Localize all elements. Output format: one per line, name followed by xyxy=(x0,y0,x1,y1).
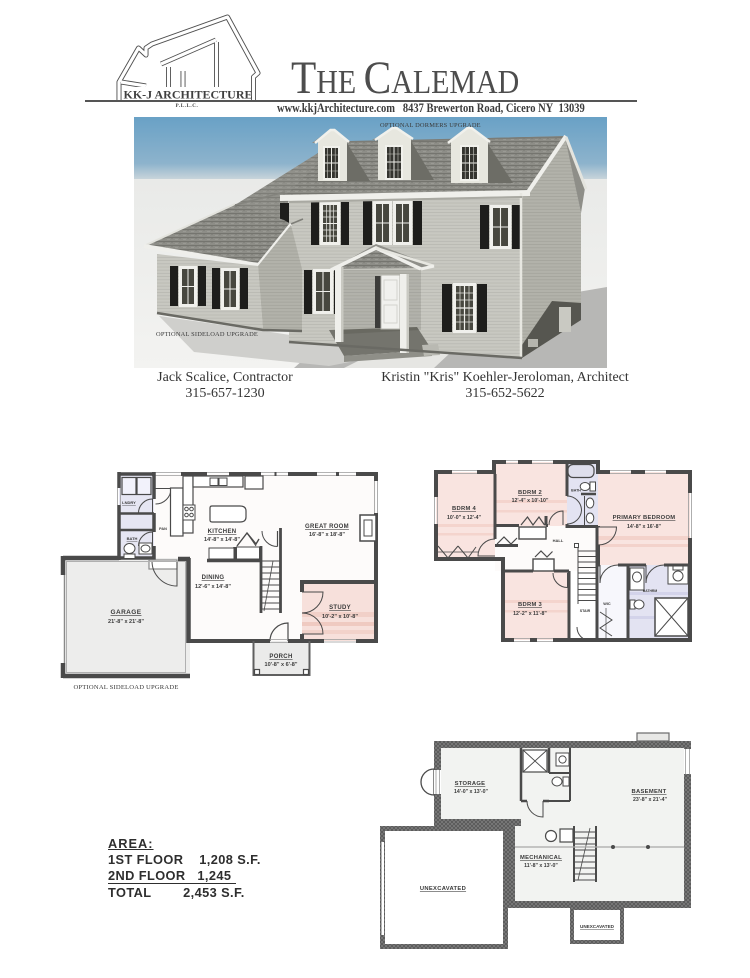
svg-text:PAN: PAN xyxy=(159,527,167,531)
svg-text:WIC: WIC xyxy=(603,602,611,606)
svg-text:KITCHEN: KITCHEN xyxy=(208,529,237,535)
svg-text:21'-8" x 21'-8": 21'-8" x 21'-8" xyxy=(108,619,144,625)
svg-text:16'-8" x 18'-8": 16'-8" x 18'-8" xyxy=(309,532,345,538)
svg-text:BATHRM: BATHRM xyxy=(643,589,658,593)
svg-text:OPTIONAL DORMERS UPGRADE: OPTIONAL DORMERS UPGRADE xyxy=(380,122,481,129)
svg-text:14'-8" x 16'-8": 14'-8" x 16'-8" xyxy=(627,524,661,530)
svg-text:DINING: DINING xyxy=(202,575,225,581)
svg-text:12'-2" x 11'-8": 12'-2" x 11'-8" xyxy=(513,611,547,617)
svg-text:HALL: HALL xyxy=(553,538,564,543)
svg-text:STORAGE: STORAGE xyxy=(455,781,486,787)
svg-text:11'-8" x 13'-0": 11'-8" x 13'-0" xyxy=(524,863,558,869)
svg-text:14'-8" x 14'-8": 14'-8" x 14'-8" xyxy=(204,537,240,543)
svg-text:OPTIONAL SIDELOAD UPGRADE: OPTIONAL SIDELOAD UPGRADE xyxy=(73,684,178,691)
svg-text:PRIMARY BEDROOM: PRIMARY BEDROOM xyxy=(613,515,676,521)
svg-text:BATH: BATH xyxy=(571,489,581,493)
svg-text:BDRM 3: BDRM 3 xyxy=(518,602,542,608)
svg-text:BDRM 2: BDRM 2 xyxy=(518,490,542,496)
svg-text:BASEMENT: BASEMENT xyxy=(632,789,667,795)
svg-text:10'-8" x 6'-8": 10'-8" x 6'-8" xyxy=(265,662,298,668)
svg-text:BATH: BATH xyxy=(127,536,138,541)
svg-text:UNEXCAVATED: UNEXCAVATED xyxy=(420,886,466,892)
svg-text:MECHANICAL: MECHANICAL xyxy=(520,855,562,861)
svg-text:BDRM 4: BDRM 4 xyxy=(452,506,476,512)
svg-text:LNDRY: LNDRY xyxy=(122,500,136,505)
svg-text:P.L.L.C.: P.L.L.C. xyxy=(176,104,199,109)
svg-text:23'-8" x 21'-4": 23'-8" x 21'-4" xyxy=(633,797,667,803)
svg-text:12'-4" x 10'-10": 12'-4" x 10'-10" xyxy=(512,498,549,504)
svg-text:12'-6" x 14'-8": 12'-6" x 14'-8" xyxy=(195,584,231,590)
svg-text:GREAT ROOM: GREAT ROOM xyxy=(305,524,349,530)
svg-text:PORCH: PORCH xyxy=(269,654,292,660)
svg-text:OPTIONAL SIDELOAD UPGRADE: OPTIONAL SIDELOAD UPGRADE xyxy=(156,331,258,338)
svg-text:10'-0" x 12'-4": 10'-0" x 12'-4" xyxy=(447,515,481,521)
svg-text:STUDY: STUDY xyxy=(329,605,351,611)
svg-text:STAIR: STAIR xyxy=(580,609,591,613)
svg-text:10'-2" x 10'-8": 10'-2" x 10'-8" xyxy=(322,614,358,620)
svg-text:GARAGE: GARAGE xyxy=(111,609,142,616)
svg-text:14'-0" x 13'-0": 14'-0" x 13'-0" xyxy=(454,789,488,795)
svg-text:UNEXCAVATED: UNEXCAVATED xyxy=(580,924,615,929)
